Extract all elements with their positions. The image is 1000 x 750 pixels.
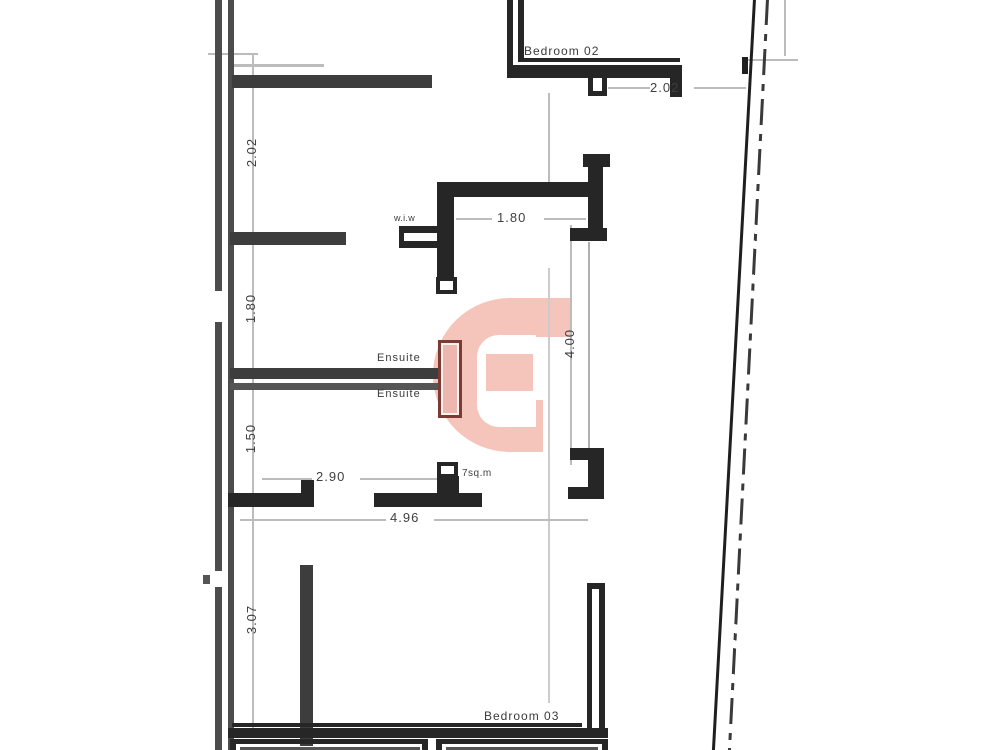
site-boundary-kink <box>742 57 748 74</box>
door-swing-mark <box>203 575 210 584</box>
wall <box>230 739 236 750</box>
wall <box>230 368 438 379</box>
ensuite-door <box>438 340 462 418</box>
dimension-label: 1.50 <box>244 424 257 453</box>
wall <box>437 182 590 197</box>
wall <box>230 739 428 744</box>
wall-face-line <box>588 242 590 448</box>
wall <box>399 226 404 248</box>
extension-line <box>746 59 798 61</box>
door-frame <box>602 78 607 95</box>
wall <box>228 728 608 738</box>
wall <box>374 493 482 507</box>
wall <box>300 565 313 746</box>
wall <box>232 75 432 88</box>
dimension-label: 1.80 <box>244 294 257 323</box>
wall <box>215 322 222 571</box>
wall <box>437 476 459 494</box>
wall <box>570 448 589 460</box>
room-label-bedroom-03: Bedroom 03 <box>484 710 559 722</box>
room-label-ensuite-lower: Ensuite <box>377 389 421 400</box>
dimension-label: 4.96 <box>390 511 419 524</box>
wall <box>568 487 589 499</box>
extension-line <box>548 268 550 703</box>
wall <box>587 583 605 589</box>
extension-line <box>784 0 786 56</box>
dimension-label: 2.90 <box>316 470 345 483</box>
dimension-line <box>240 519 386 521</box>
dimension-label: 3.07 <box>245 605 258 634</box>
wall <box>436 739 442 750</box>
dimension-line <box>360 478 440 480</box>
dimension-label: 2.02 <box>245 138 258 167</box>
wall <box>507 65 682 78</box>
wall <box>215 0 222 291</box>
wall <box>518 58 680 62</box>
dimension-label: 2.02 <box>650 81 679 94</box>
wall <box>602 739 608 750</box>
wall <box>437 183 454 279</box>
wall <box>436 739 608 744</box>
room-area-label: 7sq.m <box>462 469 492 479</box>
wall <box>215 587 222 750</box>
room-label-wiw: w.i.w <box>394 214 415 223</box>
dimension-label: 4.00 <box>563 329 576 358</box>
wall <box>301 480 314 494</box>
dimension-line <box>434 519 588 521</box>
room-label-ensuite-upper: Ensuite <box>377 353 421 364</box>
wall <box>228 493 314 507</box>
wall <box>588 448 604 499</box>
floor-plan-canvas: 2.02 1.80 1.50 3.07 4.00 2.02 1.80 2.90 … <box>0 0 1000 750</box>
dimension-line <box>608 87 650 89</box>
wall <box>399 226 439 233</box>
wall <box>599 583 605 733</box>
wall <box>232 723 582 727</box>
wall <box>399 241 439 248</box>
wall-end-frame <box>436 277 457 294</box>
dimension-label: 1.80 <box>497 211 526 224</box>
wall-end-frame <box>437 462 458 478</box>
wall <box>570 228 607 241</box>
extension-line <box>548 93 550 183</box>
dimension-line <box>694 87 746 89</box>
wall <box>587 583 592 733</box>
wall <box>422 739 428 750</box>
room-label-bedroom-02: Bedroom 02 <box>524 45 599 57</box>
dimension-line <box>456 218 492 220</box>
ensuite-door-leaf <box>443 345 457 413</box>
wall <box>230 232 346 245</box>
dimension-line <box>544 218 586 220</box>
wall-face-line <box>234 64 324 67</box>
wall <box>588 166 603 229</box>
